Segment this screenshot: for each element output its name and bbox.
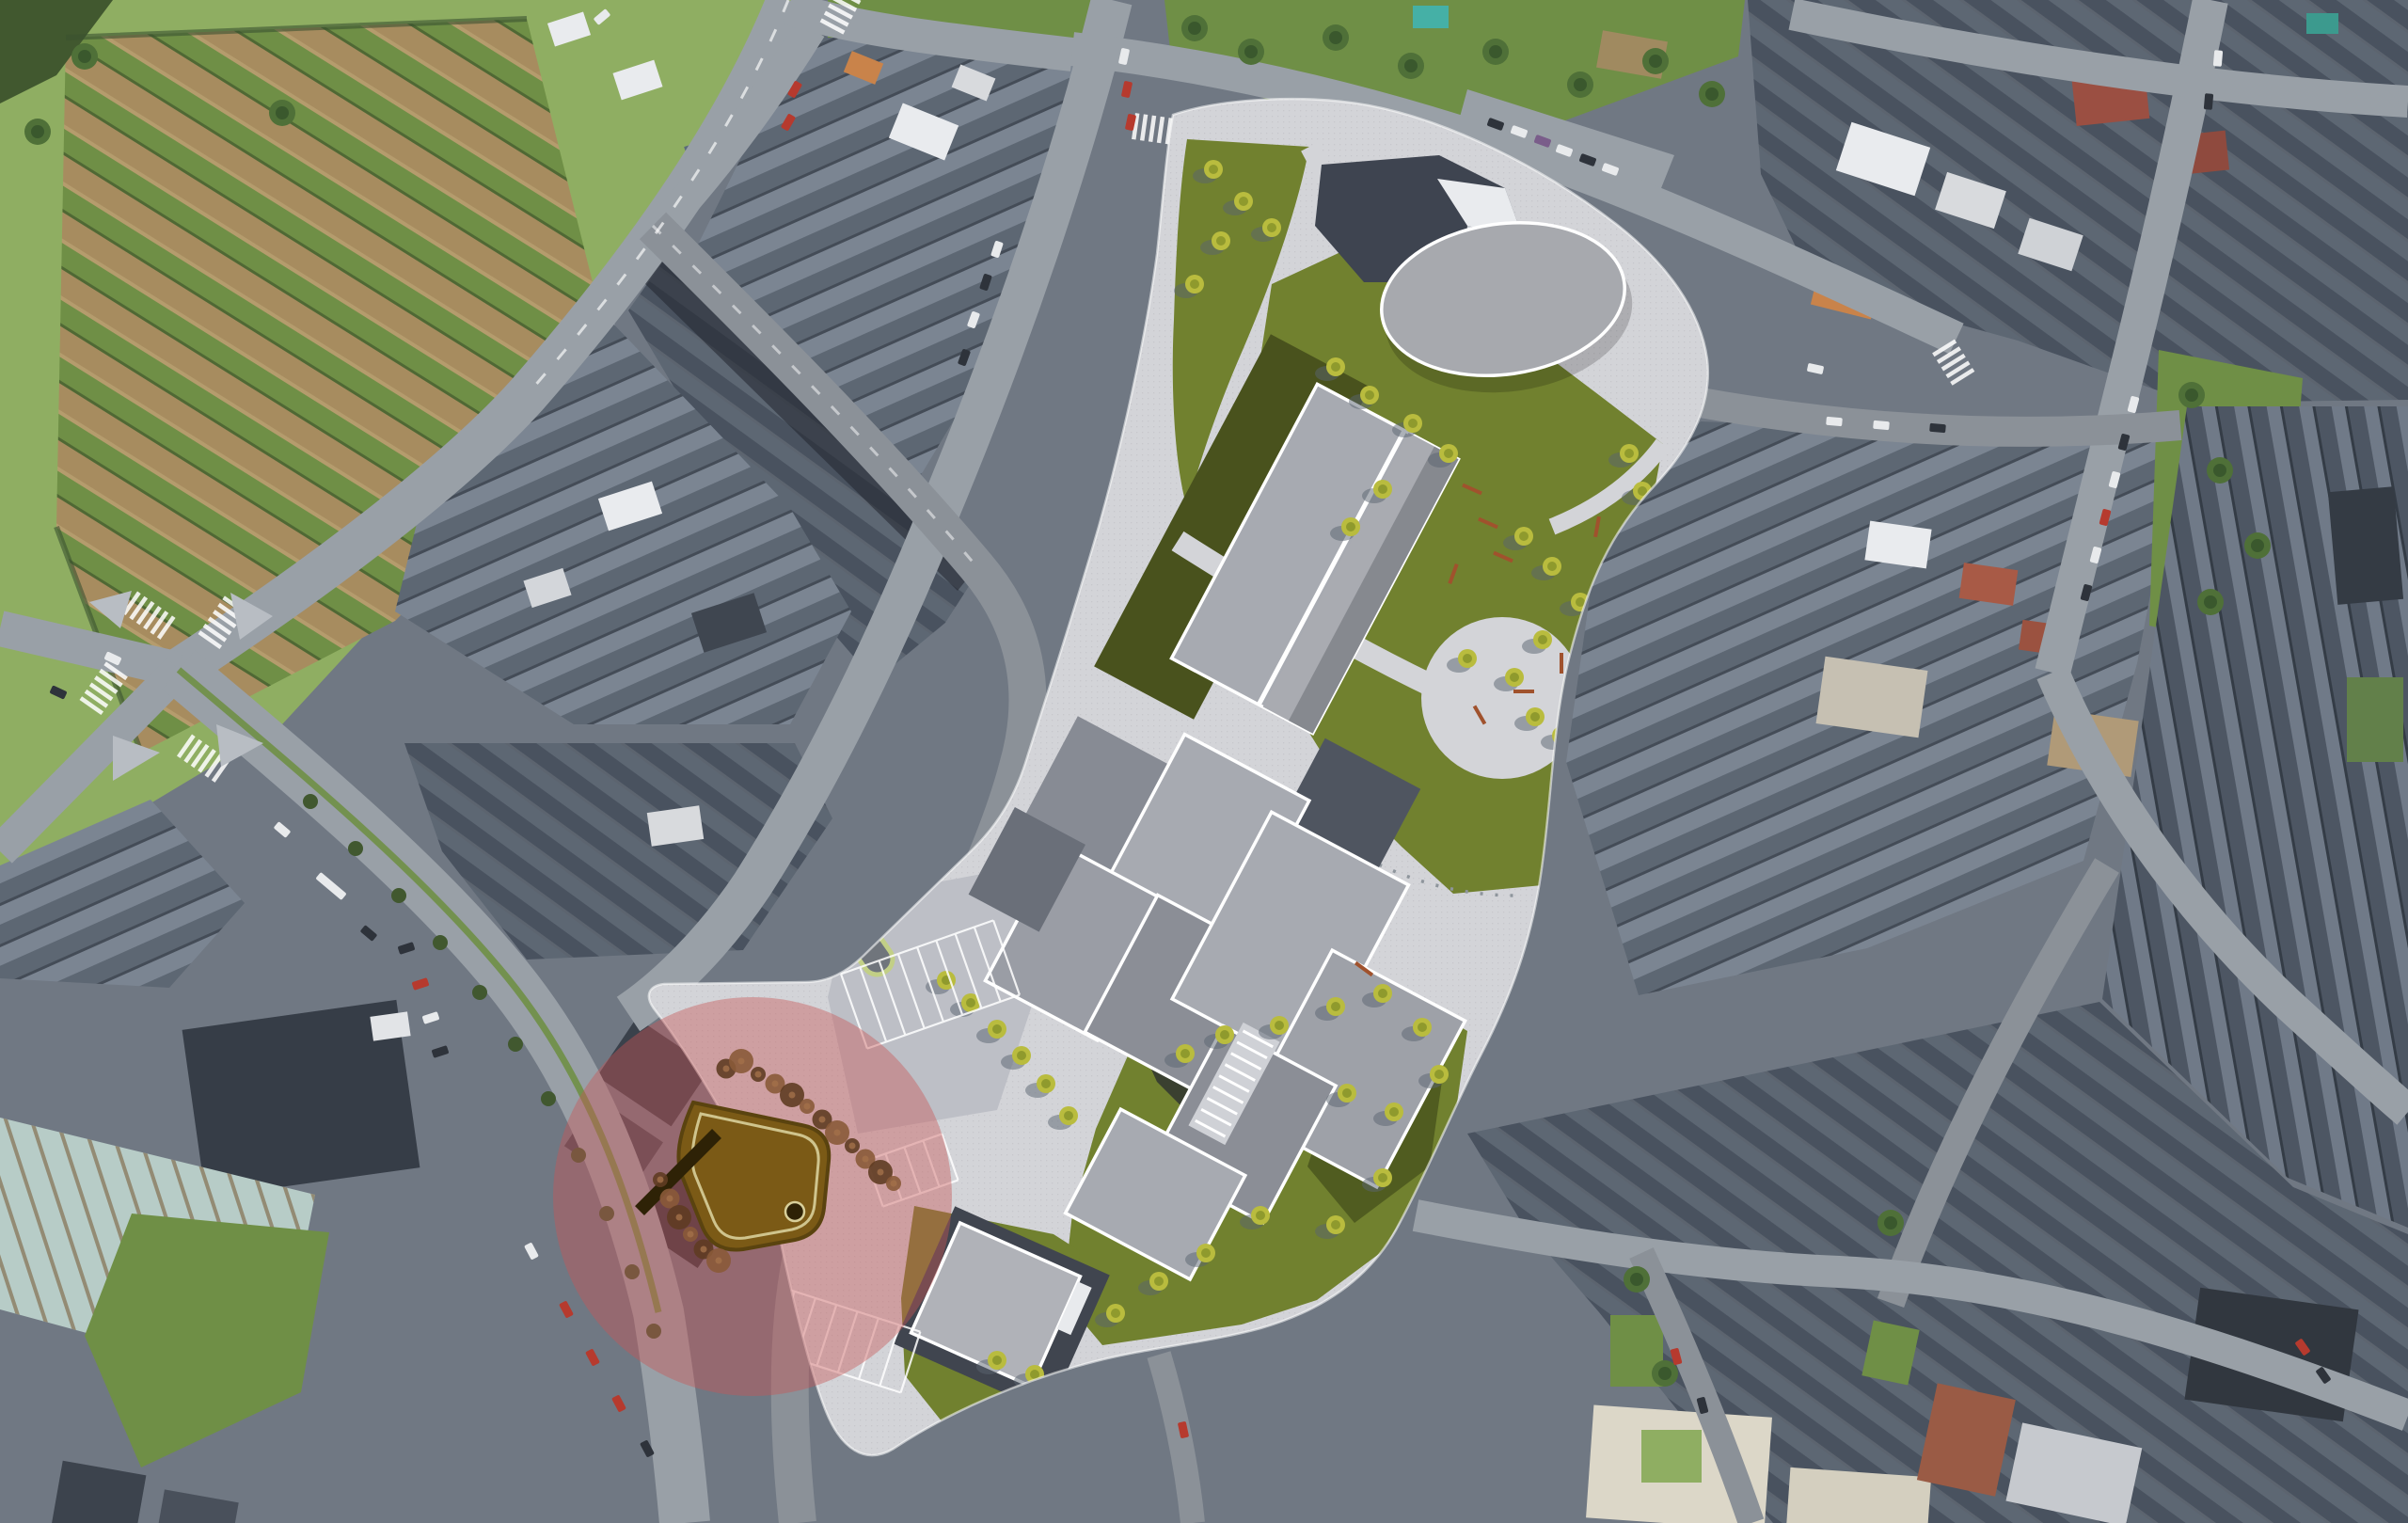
tree-core [1017,1051,1026,1060]
shrub-top [657,1177,664,1183]
plaza-ramp-end [785,1202,804,1221]
tree-core [1190,279,1199,289]
tree-core [1510,673,1519,682]
shrub-top [891,1181,897,1187]
tree-core [1239,197,1248,206]
tree-core [1275,1021,1284,1030]
tree-core [1658,1367,1671,1380]
shrub [683,1227,698,1242]
shrub-top [738,1058,745,1065]
tree-core [1209,165,1218,174]
tree-core [2251,539,2264,552]
tree-core [1404,59,1418,72]
shrub [800,1099,815,1114]
vegetation [24,119,51,145]
tree-core [1331,1220,1340,1230]
tree-core [1519,531,1529,541]
median-tree [472,985,487,1000]
tree-core [1220,1030,1229,1039]
median-tree [348,841,363,856]
tree-core [1378,1173,1387,1182]
tree-core [1547,562,1557,571]
shrub [706,1248,731,1273]
tree-core [966,998,975,1007]
vegetation [1642,48,1669,74]
shrub-top [819,1117,826,1123]
tree-core [1574,78,1587,91]
tree-core [31,125,44,138]
shrub-top [772,1081,779,1087]
tree-core [1180,1049,1190,1058]
vegetation [2207,457,2233,484]
tree-core [1408,419,1418,428]
tree-core [1188,22,1201,35]
bench [1513,690,1534,693]
tree-core [1342,1088,1352,1098]
median-tree [541,1091,556,1106]
shrub-top [755,1071,762,1078]
tree-core [1244,45,1258,58]
vegetation [2178,382,2205,408]
vegetation [71,43,98,70]
screenshot-root [0,0,2408,1523]
tree-core [1378,989,1387,998]
tree-core [1705,87,1719,101]
tree-core [1444,449,1453,458]
car [2213,50,2223,67]
tree-core [1041,1079,1051,1088]
shrub-top [863,1156,869,1163]
tree-core [1378,484,1387,494]
tree-core [2213,464,2226,477]
vegetation [2244,532,2271,559]
tree-core [1256,1211,1265,1220]
median-tree [391,888,406,903]
shrub [751,1067,766,1082]
tree-core [992,1024,1002,1034]
shrub-top [834,1130,841,1136]
tree-core [1389,1107,1399,1117]
vegetation [1624,1266,1650,1293]
highlight-overlay [553,997,952,1396]
shrub-top [878,1169,884,1176]
shrub-top [789,1092,796,1099]
median-tree [433,935,448,950]
tree-core [276,106,289,119]
tree-core [1201,1248,1211,1258]
shrub [825,1120,849,1145]
vegetation [2197,589,2224,615]
vegetation [1877,1210,1904,1236]
shrub-top [667,1196,673,1202]
shrub [667,1205,691,1230]
car [1826,417,1843,426]
tree-core [1649,55,1662,68]
tree-core [1418,1023,1427,1032]
tree-core [1489,45,1502,58]
car [1873,420,1890,430]
tree-core [1331,1002,1340,1011]
shrub-top [716,1258,722,1264]
shrub-top [688,1231,694,1238]
median-tree [508,1037,523,1052]
tree-core [1463,654,1472,663]
tree-core [1064,1111,1073,1120]
shrub [729,1049,753,1073]
bench [1560,653,1563,674]
tree-core [992,1356,1002,1365]
vegetation [1181,15,1208,41]
tree-core [1267,223,1276,232]
shrub-top [676,1214,683,1221]
tree-core [1154,1277,1164,1286]
shrub-top [723,1066,730,1072]
tree-core [1884,1216,1897,1230]
shrub-top [849,1143,856,1150]
tree-core [2185,389,2198,402]
shrub-top [804,1103,811,1110]
tree-core [1434,1070,1444,1079]
tree-core [1346,522,1355,531]
shrub [845,1138,860,1153]
tree-core [1365,390,1374,400]
vegetation [1482,39,1509,65]
vegetation [1238,39,1264,65]
tree-core [1538,635,1547,644]
tree-core [1329,31,1342,44]
tree-core [1111,1309,1120,1318]
vegetation [1699,81,1725,107]
tree-core [1216,236,1226,246]
shrub-top [701,1246,707,1253]
vegetation [1567,71,1593,98]
tree-core [1530,712,1540,722]
tree-core [78,50,91,63]
shrub [886,1176,901,1191]
car [2204,93,2213,110]
tree-core [1630,1273,1643,1286]
shrub [653,1172,668,1187]
car [1929,423,1946,433]
aerial-masterplan-image [0,0,2408,1523]
median-tree [303,794,318,809]
tree-core [2204,595,2217,609]
vegetation [269,100,295,126]
tree-core [1331,362,1340,372]
tree-core [1624,449,1634,458]
vegetation [1323,24,1349,51]
vegetation [1398,53,1424,79]
